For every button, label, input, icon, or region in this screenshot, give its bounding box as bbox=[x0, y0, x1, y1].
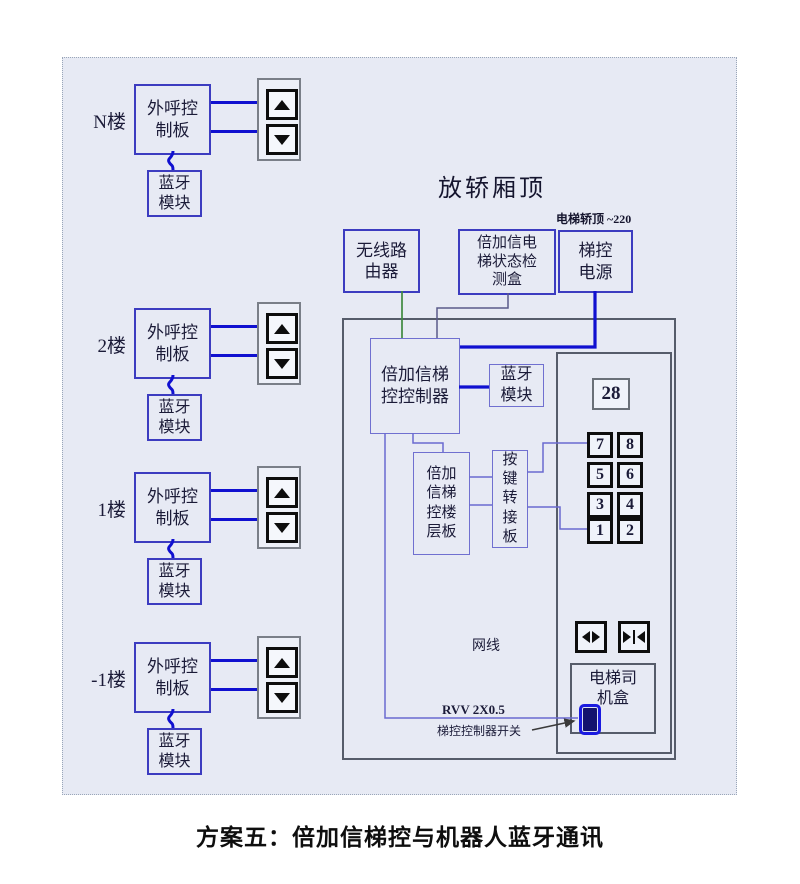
call-board-text: 外呼控 bbox=[147, 486, 198, 507]
hall-button-panel bbox=[257, 636, 301, 719]
up-arrow-icon bbox=[274, 324, 290, 334]
down-arrow-icon bbox=[274, 693, 290, 703]
call-wire-down bbox=[211, 688, 257, 691]
floor-board-box: 倍加 信梯 控楼 层板 bbox=[413, 452, 470, 555]
elevator-controller-box: 倍加信梯 控控制器 bbox=[370, 338, 460, 434]
controller-bt-text: 模块 bbox=[500, 386, 532, 407]
floor-board-text: 控楼 bbox=[426, 504, 456, 524]
controller-bt-text: 蓝牙 bbox=[500, 365, 532, 386]
elevator-power-box: 梯控 电源 bbox=[558, 230, 633, 293]
car-button-6: 6 bbox=[617, 462, 643, 488]
elevator-status-detector-box: 倍加信电 梯状态检 测盒 bbox=[458, 229, 556, 295]
call-board-box: 外呼控 制板 bbox=[134, 472, 211, 543]
controller-switch bbox=[579, 704, 601, 735]
down-button bbox=[266, 348, 298, 379]
key-adapter-char: 转 bbox=[502, 489, 517, 508]
bluetooth-text: 蓝牙 bbox=[158, 398, 190, 418]
down-button bbox=[266, 682, 298, 713]
call-board-text: 制板 bbox=[156, 120, 190, 141]
detector-text: 测盒 bbox=[492, 271, 522, 290]
bluetooth-text: 蓝牙 bbox=[158, 562, 190, 582]
down-arrow-icon bbox=[274, 359, 290, 369]
up-button bbox=[266, 89, 298, 120]
bluetooth-text: 模块 bbox=[158, 418, 190, 438]
car-button-4: 4 bbox=[617, 492, 643, 518]
call-wire-down bbox=[211, 518, 257, 521]
net-cable-label: 网线 bbox=[472, 635, 500, 655]
call-board-box: 外呼控 制板 bbox=[134, 308, 211, 379]
floor-board-text: 倍加 bbox=[426, 465, 456, 485]
floor-label: N楼 bbox=[56, 107, 126, 134]
down-button bbox=[266, 124, 298, 155]
door-close-button bbox=[618, 621, 650, 653]
up-button bbox=[266, 477, 298, 508]
car-button-7: 7 bbox=[587, 432, 613, 458]
bluetooth-text: 模块 bbox=[158, 582, 190, 602]
call-wire-down bbox=[211, 354, 257, 357]
key-adapter-text: 按 键 转 接 板 bbox=[502, 451, 517, 546]
call-wire-up bbox=[211, 325, 257, 328]
call-board-text: 制板 bbox=[156, 678, 190, 699]
hall-button-panel bbox=[257, 302, 301, 385]
call-board-box: 外呼控 制板 bbox=[134, 642, 211, 713]
bluetooth-module-box: 蓝牙 模块 bbox=[147, 558, 202, 605]
floor-board-text: 层板 bbox=[426, 523, 456, 543]
floor-board-text: 信梯 bbox=[426, 484, 456, 504]
car-button-2: 2 bbox=[617, 518, 643, 544]
power-text: 梯控 bbox=[579, 240, 613, 261]
call-wire-up bbox=[211, 101, 257, 104]
wireless-router-box: 无线路 由器 bbox=[343, 229, 420, 293]
diagram-page: N楼 外呼控 制板 蓝牙 模块 2楼 外呼控 制板 bbox=[0, 0, 800, 884]
up-button bbox=[266, 313, 298, 344]
controller-text: 控控制器 bbox=[381, 386, 449, 408]
call-board-text: 外呼控 bbox=[147, 98, 198, 119]
detector-text: 梯状态检 bbox=[477, 253, 537, 272]
door-open-button bbox=[575, 621, 607, 653]
floor-label: -1楼 bbox=[56, 665, 126, 692]
call-board-text: 制板 bbox=[156, 508, 190, 529]
driver-box-text: 电梯司 机盒 bbox=[572, 665, 654, 709]
bluetooth-module-box: 蓝牙 模块 bbox=[147, 170, 202, 217]
bluetooth-text: 模块 bbox=[158, 194, 190, 214]
car-button-8: 8 bbox=[617, 432, 643, 458]
switch-label: 梯控控制器开关 bbox=[437, 722, 521, 739]
car-top-title: 放轿厢顶 bbox=[392, 168, 592, 203]
down-button bbox=[266, 512, 298, 543]
door-close-icon bbox=[637, 631, 645, 643]
detector-text: 倍加信电 bbox=[477, 234, 537, 253]
hall-button-panel bbox=[257, 78, 301, 161]
car-button-3: 3 bbox=[587, 492, 613, 518]
power-note-label: 电梯轿顶 ~220 bbox=[556, 210, 631, 227]
key-adapter-char: 板 bbox=[502, 528, 517, 547]
router-text: 由器 bbox=[365, 261, 399, 282]
bluetooth-text: 模块 bbox=[158, 752, 190, 772]
call-wire-down bbox=[211, 130, 257, 133]
controller-bluetooth-box: 蓝牙 模块 bbox=[489, 364, 544, 407]
hall-button-panel bbox=[257, 466, 301, 549]
up-arrow-icon bbox=[274, 100, 290, 110]
door-open-icon bbox=[592, 631, 600, 643]
door-close-icon bbox=[633, 630, 635, 644]
up-button bbox=[266, 647, 298, 678]
controller-text: 倍加信梯 bbox=[381, 364, 449, 386]
down-arrow-icon bbox=[274, 523, 290, 533]
floor-label: 2楼 bbox=[56, 331, 126, 358]
key-adapter-char: 接 bbox=[502, 509, 517, 528]
door-open-icon bbox=[582, 631, 590, 643]
power-text: 电源 bbox=[579, 262, 613, 283]
bluetooth-text: 蓝牙 bbox=[158, 174, 190, 194]
router-text: 无线路 bbox=[356, 240, 407, 261]
key-adapter-char: 键 bbox=[502, 470, 517, 489]
call-board-text: 外呼控 bbox=[147, 656, 198, 677]
call-board-text: 制板 bbox=[156, 344, 190, 365]
up-arrow-icon bbox=[274, 488, 290, 498]
bluetooth-text: 蓝牙 bbox=[158, 732, 190, 752]
door-close-icon bbox=[623, 631, 631, 643]
call-wire-up bbox=[211, 659, 257, 662]
down-arrow-icon bbox=[274, 135, 290, 145]
call-board-text: 外呼控 bbox=[147, 322, 198, 343]
call-wire-up bbox=[211, 489, 257, 492]
bluetooth-module-box: 蓝牙 模块 bbox=[147, 728, 202, 775]
key-adapter-box: 按 键 转 接 板 bbox=[492, 450, 528, 548]
car-button-1: 1 bbox=[587, 518, 613, 544]
call-board-box: 外呼控 制板 bbox=[134, 84, 211, 155]
floor-display: 28 bbox=[592, 378, 630, 410]
bluetooth-module-box: 蓝牙 模块 bbox=[147, 394, 202, 441]
car-button-5: 5 bbox=[587, 462, 613, 488]
rvv-cable-label: RVV 2X0.5 bbox=[442, 702, 505, 718]
diagram-caption: 方案五：倍加信梯控与机器人蓝牙通讯 bbox=[0, 818, 800, 852]
driver-box-line: 电梯司 bbox=[572, 669, 654, 689]
floor-label: 1楼 bbox=[56, 495, 126, 522]
key-adapter-char: 按 bbox=[502, 451, 517, 470]
up-arrow-icon bbox=[274, 658, 290, 668]
